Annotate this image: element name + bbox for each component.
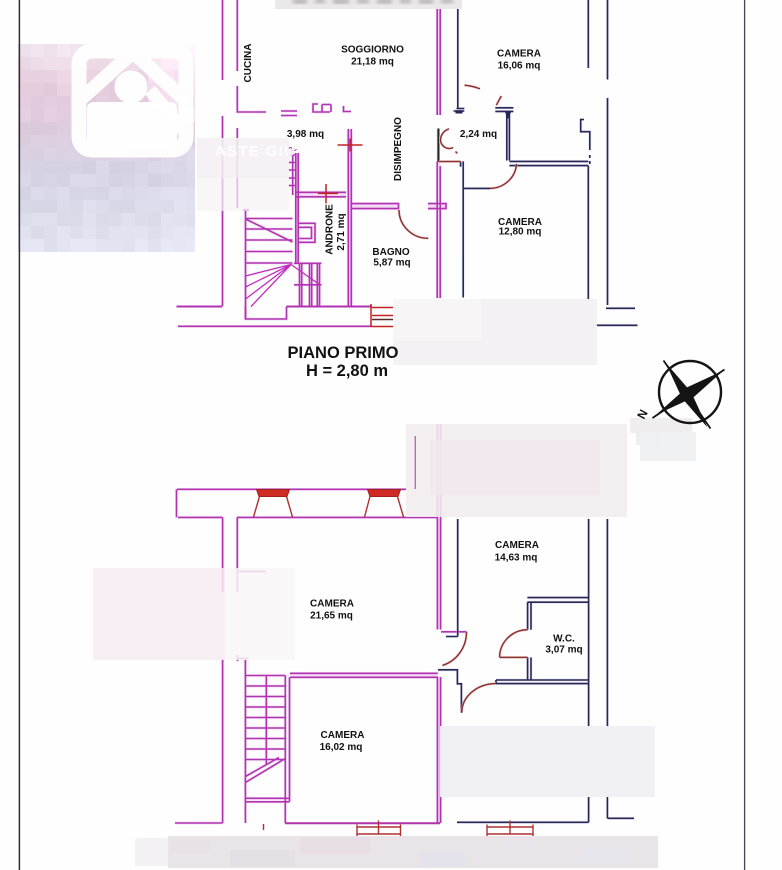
- svg-text:ASTE GIU: ASTE GIU: [215, 143, 296, 160]
- svg-text:ANDRONE: ANDRONE: [325, 204, 336, 255]
- svg-text:CAMERA: CAMERA: [495, 540, 539, 551]
- svg-text:3,07 mq: 3,07 mq: [545, 645, 582, 656]
- svg-text:SOGGIORNO: SOGGIORNO: [341, 45, 404, 56]
- svg-text:12,80 mq: 12,80 mq: [499, 227, 542, 238]
- svg-text:CAMERA: CAMERA: [321, 730, 365, 741]
- svg-text:CAMERA: CAMERA: [497, 49, 541, 60]
- svg-text:2,24 mq: 2,24 mq: [460, 129, 497, 140]
- svg-text:16,02 mq: 16,02 mq: [320, 742, 363, 753]
- svg-text:CAMERA: CAMERA: [310, 599, 354, 610]
- svg-text:H = 2,80 m: H = 2,80 m: [306, 362, 388, 380]
- svg-text:W.C.: W.C.: [553, 634, 575, 645]
- svg-text:CUCINA: CUCINA: [243, 44, 254, 83]
- svg-text:21,65 mq: 21,65 mq: [310, 611, 353, 622]
- svg-text:21,18 mq: 21,18 mq: [351, 57, 394, 68]
- svg-text:5,87 mq: 5,87 mq: [373, 258, 410, 269]
- svg-text:14,63 mq: 14,63 mq: [495, 553, 538, 564]
- svg-text:2,71 mq: 2,71 mq: [336, 213, 347, 250]
- svg-text:DISIMPEGNO: DISIMPEGNO: [393, 117, 404, 181]
- svg-text:16,06 mq: 16,06 mq: [498, 61, 541, 72]
- svg-text:PIANO PRIMO: PIANO PRIMO: [288, 344, 399, 362]
- svg-text:BAGNO: BAGNO: [372, 247, 409, 258]
- svg-text:3,98 mq: 3,98 mq: [287, 129, 324, 140]
